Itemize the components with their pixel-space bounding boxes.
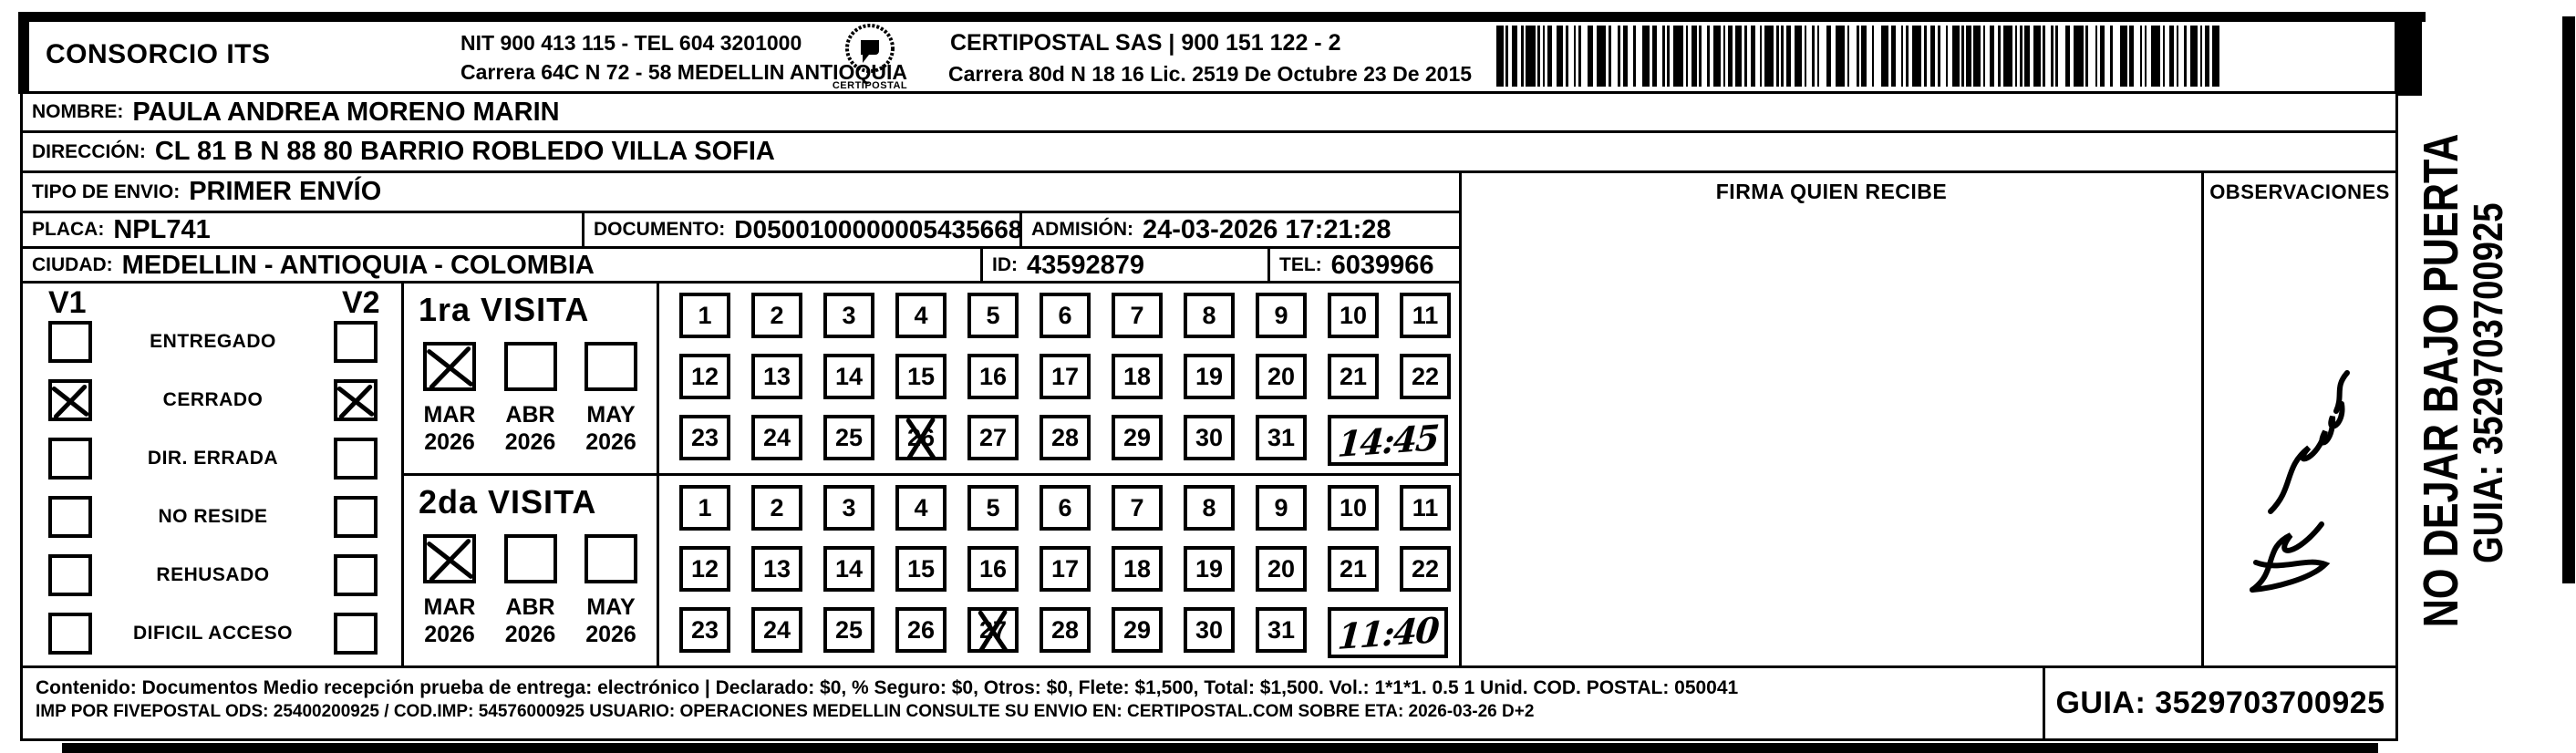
nombre-value: PAULA ANDREA MORENO MARIN: [132, 98, 559, 128]
visit2-block: 2da VISITA MAR2026ABR2026MAY2026: [401, 473, 659, 668]
v1-column-label: V1: [48, 285, 87, 321]
bottom-edge-bar: [62, 743, 2378, 753]
day-6-box: 6: [1040, 293, 1091, 338]
barcode-bar: [1786, 26, 1791, 87]
barcode-bar: [2033, 26, 2041, 87]
month-year: 2026: [505, 622, 556, 648]
day-29-box: 29: [1112, 415, 1163, 460]
documento-label: DOCUMENTO:: [594, 219, 725, 241]
day-27-box: 27: [967, 607, 1019, 653]
day-23-box: 23: [679, 607, 730, 653]
barcode-bar: [2184, 26, 2187, 87]
placa-cell: PLACA: NPL741: [20, 211, 585, 249]
day-number: 3: [842, 494, 855, 522]
day-number: 9: [1274, 302, 1288, 330]
day-3-box: 3: [823, 293, 874, 338]
day-number: 30: [1195, 616, 1223, 645]
day-number: 18: [1123, 555, 1151, 583]
barcode-bar: [1861, 26, 1866, 87]
direccion-row: DIRECCIÓN: CL 81 B N 88 80 BARRIO ROBLED…: [20, 130, 2398, 173]
status-row-cerrado: CERRADO: [23, 376, 401, 424]
day-number: 23: [691, 616, 719, 645]
ciudad-value: MEDELLIN - ANTIOQUIA - COLOMBIA: [122, 251, 595, 281]
day-number: 5: [986, 302, 999, 330]
month-option-mar: MAR2026: [411, 342, 488, 456]
barcode-bar: [1776, 26, 1779, 87]
barcode-bar: [1521, 26, 1524, 87]
tel-cell: TEL: 6039966: [1267, 246, 1462, 284]
day-14-box: 14: [823, 354, 874, 399]
firma-area: [1459, 211, 2204, 668]
footer-line2: IMP POR FIVEPOSTAL ODS: 25400200925 / CO…: [36, 700, 2043, 723]
day-number: 9: [1274, 494, 1288, 522]
v2-column-label: V2: [342, 285, 380, 321]
day-17-box: 17: [1040, 546, 1091, 592]
barcode-bar: [1588, 26, 1592, 87]
calendar-row: 1234567891011: [679, 293, 1451, 338]
footer-text-cell: Contenido: Documentos Medio recepción pr…: [20, 665, 2045, 741]
day-number: 11: [1412, 302, 1439, 330]
v1-entregado-checkbox: [48, 321, 92, 363]
month-label: MAR: [424, 594, 476, 621]
month-may-checkbox: [585, 534, 637, 583]
day-31-box: 31: [1256, 415, 1307, 460]
month-option-may: MAY2026: [573, 534, 649, 648]
day-number: 22: [1412, 363, 1439, 391]
handwritten-time: 14:45: [1337, 417, 1440, 465]
recipient-signature: [2234, 324, 2371, 606]
barcode-bar: [1817, 26, 1820, 87]
day-8-box: 8: [1184, 293, 1235, 338]
day-30-box: 30: [1184, 415, 1235, 460]
barcode-bar: [1505, 26, 1508, 87]
day-number: 1: [698, 494, 711, 522]
day-number: 23: [691, 424, 719, 452]
barcode-bar: [1952, 26, 1960, 87]
handwritten-x-mark: [52, 383, 88, 418]
day-20-box: 20: [1256, 546, 1307, 592]
barcode-bar: [1881, 26, 1888, 87]
day-28-box: 28: [1040, 607, 1091, 653]
shipping-label-scan: CONSORCIO ITS NIT 900 413 115 - TEL 604 …: [0, 0, 2576, 753]
month-label: MAY: [586, 594, 635, 621]
v2-cerrado-checkbox: [334, 379, 378, 421]
day-number: 17: [1051, 555, 1079, 583]
nombre-label: NOMBRE:: [32, 101, 123, 123]
barcode-bar: [2024, 26, 2029, 87]
day-24-box: 24: [751, 415, 802, 460]
status-row-entregado: ENTREGADO: [23, 318, 401, 366]
admision-label: ADMISIÓN:: [1031, 219, 1133, 241]
status-row-dir-errada: DIR. ERRADA: [23, 435, 401, 482]
observaciones-header: OBSERVACIONES: [2201, 170, 2398, 213]
day-number: 8: [1202, 302, 1216, 330]
v1-cerrado-checkbox: [48, 379, 92, 421]
day-number: 11: [1412, 494, 1439, 522]
day-number: 20: [1267, 555, 1295, 583]
day-12-box: 12: [679, 354, 730, 399]
day-number: 27: [979, 424, 1007, 452]
barcode-bar: [2212, 26, 2219, 87]
day-number: 17: [1051, 363, 1079, 391]
day-5-box: 5: [967, 485, 1019, 531]
v2-no-reside-checkbox: [334, 496, 378, 538]
day-number: 3: [842, 302, 855, 330]
day-number: 19: [1195, 363, 1223, 391]
month-year: 2026: [505, 429, 556, 456]
barcode-bar: [1973, 26, 1981, 87]
day-31-box: 31: [1256, 607, 1307, 653]
barcode-bar: [1578, 26, 1581, 87]
certipostal-address: Carrera 80d N 18 16 Lic. 2519 De Octubre…: [948, 60, 1472, 88]
month-year: 2026: [424, 622, 475, 648]
visit1-block: 1ra VISITA MAR2026ABR2026MAY2026: [401, 281, 659, 476]
barcode-bar: [2177, 26, 2179, 87]
day-30-box: 30: [1184, 607, 1235, 653]
status-label: CERRADO: [92, 389, 334, 411]
tel-value: 6039966: [1331, 251, 1434, 281]
logo-caption: CERTIPOSTAL: [821, 80, 919, 91]
ciudad-label: CIUDAD:: [32, 254, 113, 276]
v2-rehusado-checkbox: [334, 554, 378, 596]
day-3-box: 3: [823, 485, 874, 531]
day-number: 2: [770, 302, 783, 330]
status-label: DIFICIL ACCESO: [92, 623, 334, 645]
left-edge-bar: [18, 12, 29, 94]
day-6-box: 6: [1040, 485, 1091, 531]
barcode-bar: [2120, 26, 2127, 87]
barcode-bar: [1633, 26, 1636, 87]
day-21-box: 21: [1328, 354, 1379, 399]
month-abr-checkbox: [504, 342, 557, 391]
v1-dificil-acceso-checkbox: [48, 613, 92, 655]
barcode-bar: [1961, 26, 1964, 87]
visit2-months: MAR2026ABR2026MAY2026: [411, 534, 649, 648]
visit2-calendar: 1234567891011121314151617181920212223242…: [657, 473, 1462, 668]
direccion-value: CL 81 B N 88 80 BARRIO ROBLEDO VILLA SOF…: [155, 137, 775, 167]
barcode-bar: [1623, 26, 1628, 87]
day-number: 26: [907, 616, 935, 645]
v2-dificil-acceso-checkbox: [334, 613, 378, 655]
barcode-bar: [1537, 26, 1540, 87]
day-number: 5: [986, 494, 999, 522]
barcode-bar: [2043, 26, 2045, 87]
day-13-box: 13: [751, 546, 802, 592]
documento-cell: DOCUMENTO: D05001000000054356683: [582, 211, 1022, 249]
day-11-box: 11: [1400, 293, 1451, 338]
status-label: DIR. ERRADA: [92, 448, 334, 469]
day-number: 21: [1340, 363, 1367, 391]
month-label: MAY: [586, 402, 635, 428]
day-number: 29: [1123, 424, 1151, 452]
day-28-box: 28: [1040, 415, 1091, 460]
barcode-bar: [1728, 26, 1733, 87]
calendar-row: 23242526272829303111:40: [679, 607, 1448, 658]
barcode-bar: [1699, 26, 1702, 87]
day-number: 2: [770, 494, 783, 522]
v2-dir-errada-checkbox: [334, 438, 378, 480]
day-24-box: 24: [751, 607, 802, 653]
day-11-box: 11: [1400, 485, 1451, 531]
barcode-bar: [2020, 26, 2023, 87]
day-number: 21: [1340, 555, 1367, 583]
barcode-bar: [1912, 26, 1921, 87]
direccion-label: DIRECCIÓN:: [32, 141, 146, 163]
day-19-box: 19: [1184, 546, 1235, 592]
barcode-bar: [1990, 26, 1994, 87]
day-number: 12: [691, 555, 719, 583]
day-25-box: 25: [823, 415, 874, 460]
barcode-bar: [2100, 26, 2105, 87]
day-10-box: 10: [1328, 293, 1379, 338]
tel-label: TEL:: [1279, 254, 1322, 276]
barcode-bar: [1667, 26, 1670, 87]
barcode-bar: [1707, 26, 1710, 87]
status-rows: ENTREGADOCERRADODIR. ERRADANO RESIDEREHU…: [23, 318, 401, 668]
barcode-bar: [2110, 26, 2113, 87]
day-number: 14: [835, 555, 863, 583]
barcode-bar: [1805, 26, 1807, 87]
day-number: 15: [907, 363, 935, 391]
nombre-row: NOMBRE: PAULA ANDREA MORENO MARIN: [20, 91, 2398, 133]
day-27-box: 27: [967, 415, 1019, 460]
barcode-bar: [2051, 26, 2054, 87]
barcode-bar: [1795, 26, 1802, 87]
visit1-months: MAR2026ABR2026MAY2026: [411, 342, 649, 456]
month-abr-checkbox: [504, 534, 557, 583]
header-right-corner-bar: [2395, 12, 2422, 96]
barcode-bar: [1512, 26, 1516, 87]
day-number: 16: [979, 363, 1007, 391]
day-2-box: 2: [751, 485, 802, 531]
barcode-bar: [2085, 26, 2088, 87]
day-number: 15: [907, 555, 935, 583]
day-15-box: 15: [895, 354, 947, 399]
day-13-box: 13: [751, 354, 802, 399]
day-14-box: 14: [823, 546, 874, 592]
barcode-bar: [1938, 26, 1940, 87]
barcode-bar: [1642, 26, 1650, 87]
day-number: 14: [835, 363, 863, 391]
barcode-bar: [1723, 26, 1726, 87]
barcode-bar: [1735, 26, 1743, 87]
calendar-row: 1213141516171819202122: [679, 354, 1451, 399]
day-number: 25: [835, 424, 863, 452]
day-number: 1: [698, 302, 711, 330]
day-26-box: 26: [895, 415, 947, 460]
month-year: 2026: [585, 622, 636, 648]
tipo-envio-label: TIPO DE ENVIO:: [32, 181, 180, 203]
certipostal-logo-icon: [841, 22, 899, 78]
barcode-bar: [1609, 26, 1611, 87]
barcode-bar: [1847, 26, 1850, 87]
day-2-box: 2: [751, 293, 802, 338]
status-row-no-reside: NO RESIDE: [23, 493, 401, 541]
barcode-bar: [1496, 26, 1504, 87]
v2-entregado-checkbox: [334, 321, 378, 363]
day-19-box: 19: [1184, 354, 1235, 399]
month-option-abr: ABR2026: [492, 342, 569, 456]
day-15-box: 15: [895, 546, 947, 592]
day-number: 24: [763, 424, 791, 452]
admision-value: 24-03-2026 17:21:28: [1143, 215, 1391, 245]
month-year: 2026: [585, 429, 636, 456]
footer-guia-value: GUIA: 3529703700925: [2055, 686, 2385, 721]
barcode-bar: [1662, 26, 1665, 87]
documento-value: D05001000000054356683: [734, 215, 1022, 244]
day-number: 6: [1058, 494, 1071, 522]
day-20-box: 20: [1256, 354, 1307, 399]
day-9-box: 9: [1256, 485, 1307, 531]
barcode-bar: [2140, 26, 2143, 87]
status-label: ENTREGADO: [92, 331, 334, 353]
day-number: 8: [1202, 494, 1216, 522]
barcode-bar: [1930, 26, 1935, 87]
barcode-bar: [1566, 26, 1568, 87]
placa-value: NPL741: [113, 215, 210, 245]
company-nit-tel: NIT 900 413 115 - TEL 604 3201000: [460, 29, 802, 57]
day-number: 4: [914, 302, 927, 330]
day-26-box: 26: [895, 607, 947, 653]
handwritten-time: 11:40: [1337, 609, 1440, 657]
status-row-dificil-acceso: DIFICIL ACCESO: [23, 610, 401, 657]
day-8-box: 8: [1184, 485, 1235, 531]
visit2-title: 2da VISITA: [419, 483, 596, 521]
month-label: ABR: [505, 402, 554, 428]
barcode-bar: [1826, 26, 1831, 87]
month-option-abr: ABR2026: [492, 534, 569, 648]
barcode-bar: [1760, 26, 1763, 87]
day-5-box: 5: [967, 293, 1019, 338]
status-label: NO RESIDE: [92, 506, 334, 528]
handwritten-x-mark: [427, 538, 472, 580]
day-number: 28: [1051, 424, 1079, 452]
barcode-bar: [1618, 26, 1620, 87]
barcode-bar: [1983, 26, 1986, 87]
month-option-may: MAY2026: [573, 342, 649, 456]
v1-rehusado-checkbox: [48, 554, 92, 596]
day-number: 13: [763, 555, 791, 583]
day-22-box: 22: [1400, 354, 1451, 399]
month-option-mar: MAR2026: [411, 534, 488, 648]
barcode-bar: [1966, 26, 1971, 87]
day-number: 6: [1058, 302, 1071, 330]
day-number: 10: [1340, 302, 1367, 330]
day-number: 20: [1267, 363, 1295, 391]
top-edge-bar: [23, 12, 2426, 22]
barcode-bar: [1901, 26, 1904, 87]
barcode-bar: [1526, 26, 1535, 87]
barcode-bar: [2095, 26, 2098, 87]
day-10-box: 10: [1328, 485, 1379, 531]
handwritten-time-box: 14:45: [1328, 415, 1448, 466]
side-warning-text: NO DEJAR BAJO PUERTA: [2413, 175, 2469, 587]
barcode-bar: [2129, 26, 2134, 87]
day-number: 13: [763, 363, 791, 391]
day-number: 24: [763, 616, 791, 645]
day-number: 18: [1123, 363, 1151, 391]
barcode-bar: [2151, 26, 2160, 87]
day-number: 27: [979, 616, 1007, 645]
barcode-bar: [1691, 26, 1696, 87]
handwritten-x-mark: [337, 383, 374, 418]
barcode-bar: [1686, 26, 1689, 87]
day-16-box: 16: [967, 354, 1019, 399]
footer-guia-cell: GUIA: 3529703700925: [2043, 665, 2398, 741]
month-label: ABR: [505, 594, 554, 621]
id-label: ID:: [992, 254, 1018, 276]
tipo-envio-value: PRIMER ENVÍO: [189, 177, 381, 207]
day-number: 29: [1123, 616, 1151, 645]
month-may-checkbox: [585, 342, 637, 391]
status-label: REHUSADO: [92, 564, 334, 586]
barcode-bar: [1812, 26, 1815, 87]
day-1-box: 1: [679, 485, 730, 531]
barcode-bar: [2200, 26, 2203, 87]
month-mar-checkbox: [423, 534, 476, 583]
barcode-bar: [1872, 26, 1875, 87]
barcode-bar: [2003, 26, 2012, 87]
tipo-envio-cell: TIPO DE ENVIO: PRIMER ENVÍO: [20, 170, 1462, 213]
day-number: 31: [1267, 424, 1295, 452]
barcode-bar: [1891, 26, 1896, 87]
day-4-box: 4: [895, 293, 947, 338]
day-22-box: 22: [1400, 546, 1451, 592]
barcode-bar: [2065, 26, 2070, 87]
handwritten-x-mark: [427, 346, 472, 387]
day-25-box: 25: [823, 607, 874, 653]
day-18-box: 18: [1112, 354, 1163, 399]
barcode-bar: [1652, 26, 1657, 87]
placa-label: PLACA:: [32, 219, 104, 241]
status-block: V1 V2 ENTREGADOCERRADODIR. ERRADANO RESI…: [20, 281, 404, 668]
barcode-bar: [1836, 26, 1845, 87]
day-29-box: 29: [1112, 607, 1163, 653]
barcode-bar: [1781, 26, 1784, 87]
company-name: CONSORCIO ITS: [46, 39, 271, 70]
barcode-bar: [1857, 26, 1859, 87]
visit1-title: 1ra VISITA: [419, 291, 589, 329]
month-label: MAR: [424, 402, 476, 428]
day-12-box: 12: [679, 546, 730, 592]
day-number: 30: [1195, 424, 1223, 452]
footer-line1: Contenido: Documentos Medio recepción pr…: [36, 676, 2043, 700]
barcode-bar: [1906, 26, 1909, 87]
day-number: 31: [1267, 616, 1295, 645]
day-number: 7: [1130, 494, 1143, 522]
day-16-box: 16: [967, 546, 1019, 592]
day-number: 10: [1340, 494, 1367, 522]
ciudad-cell: CIUDAD: MEDELLIN - ANTIOQUIA - COLOMBIA: [20, 246, 983, 284]
calendar-row: 1213141516171819202122: [679, 546, 1451, 592]
day-1-box: 1: [679, 293, 730, 338]
day-4-box: 4: [895, 485, 947, 531]
day-23-box: 23: [679, 415, 730, 460]
barcode-bar: [2055, 26, 2058, 87]
status-row-rehusado: REHUSADO: [23, 552, 401, 599]
day-number: 22: [1412, 555, 1439, 583]
day-number: 4: [914, 494, 927, 522]
day-number: 7: [1130, 302, 1143, 330]
day-number: 19: [1195, 555, 1223, 583]
barcode-bar: [2074, 26, 2083, 87]
barcode-bar: [1946, 26, 1949, 87]
certipostal-line: CERTIPOSTAL SAS | 900 151 122 - 2: [950, 29, 1340, 57]
v1-no-reside-checkbox: [48, 496, 92, 538]
v1-dir-errada-checkbox: [48, 438, 92, 480]
id-value: 43592879: [1027, 251, 1144, 281]
barcode-bar: [1574, 26, 1577, 87]
